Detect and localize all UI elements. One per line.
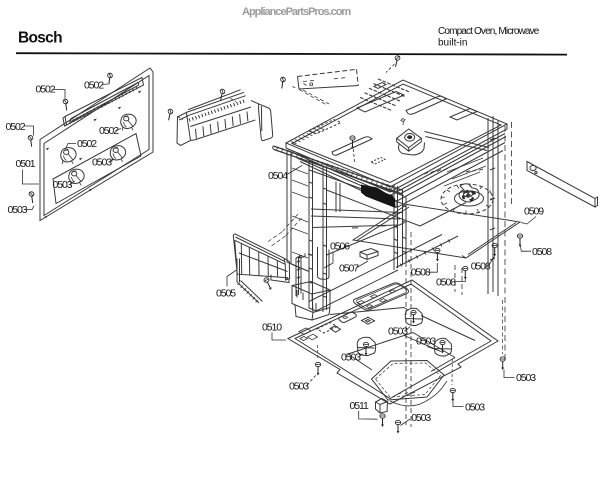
svg-text:0501: 0501 bbox=[16, 158, 36, 170]
svg-text:0506: 0506 bbox=[330, 241, 350, 253]
svg-text:0503: 0503 bbox=[516, 372, 536, 384]
svg-text:0503: 0503 bbox=[289, 381, 309, 393]
svg-text:0503: 0503 bbox=[8, 204, 28, 216]
svg-text:0507: 0507 bbox=[339, 263, 359, 275]
svg-text:0502: 0502 bbox=[77, 138, 97, 150]
svg-text:0508: 0508 bbox=[411, 267, 431, 279]
svg-text:0509: 0509 bbox=[524, 206, 544, 218]
svg-text:0508: 0508 bbox=[532, 246, 552, 258]
svg-text:0508: 0508 bbox=[436, 277, 456, 289]
svg-text:Bosch: Bosch bbox=[18, 30, 62, 47]
svg-text:0503: 0503 bbox=[411, 412, 431, 424]
svg-text:0508: 0508 bbox=[471, 261, 491, 273]
svg-text:0502: 0502 bbox=[6, 121, 26, 133]
svg-text:built-in: built-in bbox=[438, 38, 467, 49]
svg-text:0504: 0504 bbox=[268, 170, 288, 182]
svg-text:0503: 0503 bbox=[53, 179, 73, 191]
svg-text:0503: 0503 bbox=[341, 352, 361, 364]
svg-text:0511: 0511 bbox=[350, 400, 369, 412]
svg-text:0503: 0503 bbox=[465, 402, 485, 414]
svg-text:0505: 0505 bbox=[216, 288, 236, 300]
svg-text:0502: 0502 bbox=[99, 125, 119, 137]
svg-text:0503: 0503 bbox=[92, 157, 112, 169]
svg-text:0503: 0503 bbox=[416, 336, 436, 348]
svg-text:AppliancePartsPros.com: AppliancePartsPros.com bbox=[242, 6, 351, 18]
svg-text:Compact Oven, Microwave: Compact Oven, Microwave bbox=[438, 26, 540, 37]
svg-text:0510: 0510 bbox=[262, 322, 282, 334]
svg-text:0502: 0502 bbox=[84, 80, 104, 92]
